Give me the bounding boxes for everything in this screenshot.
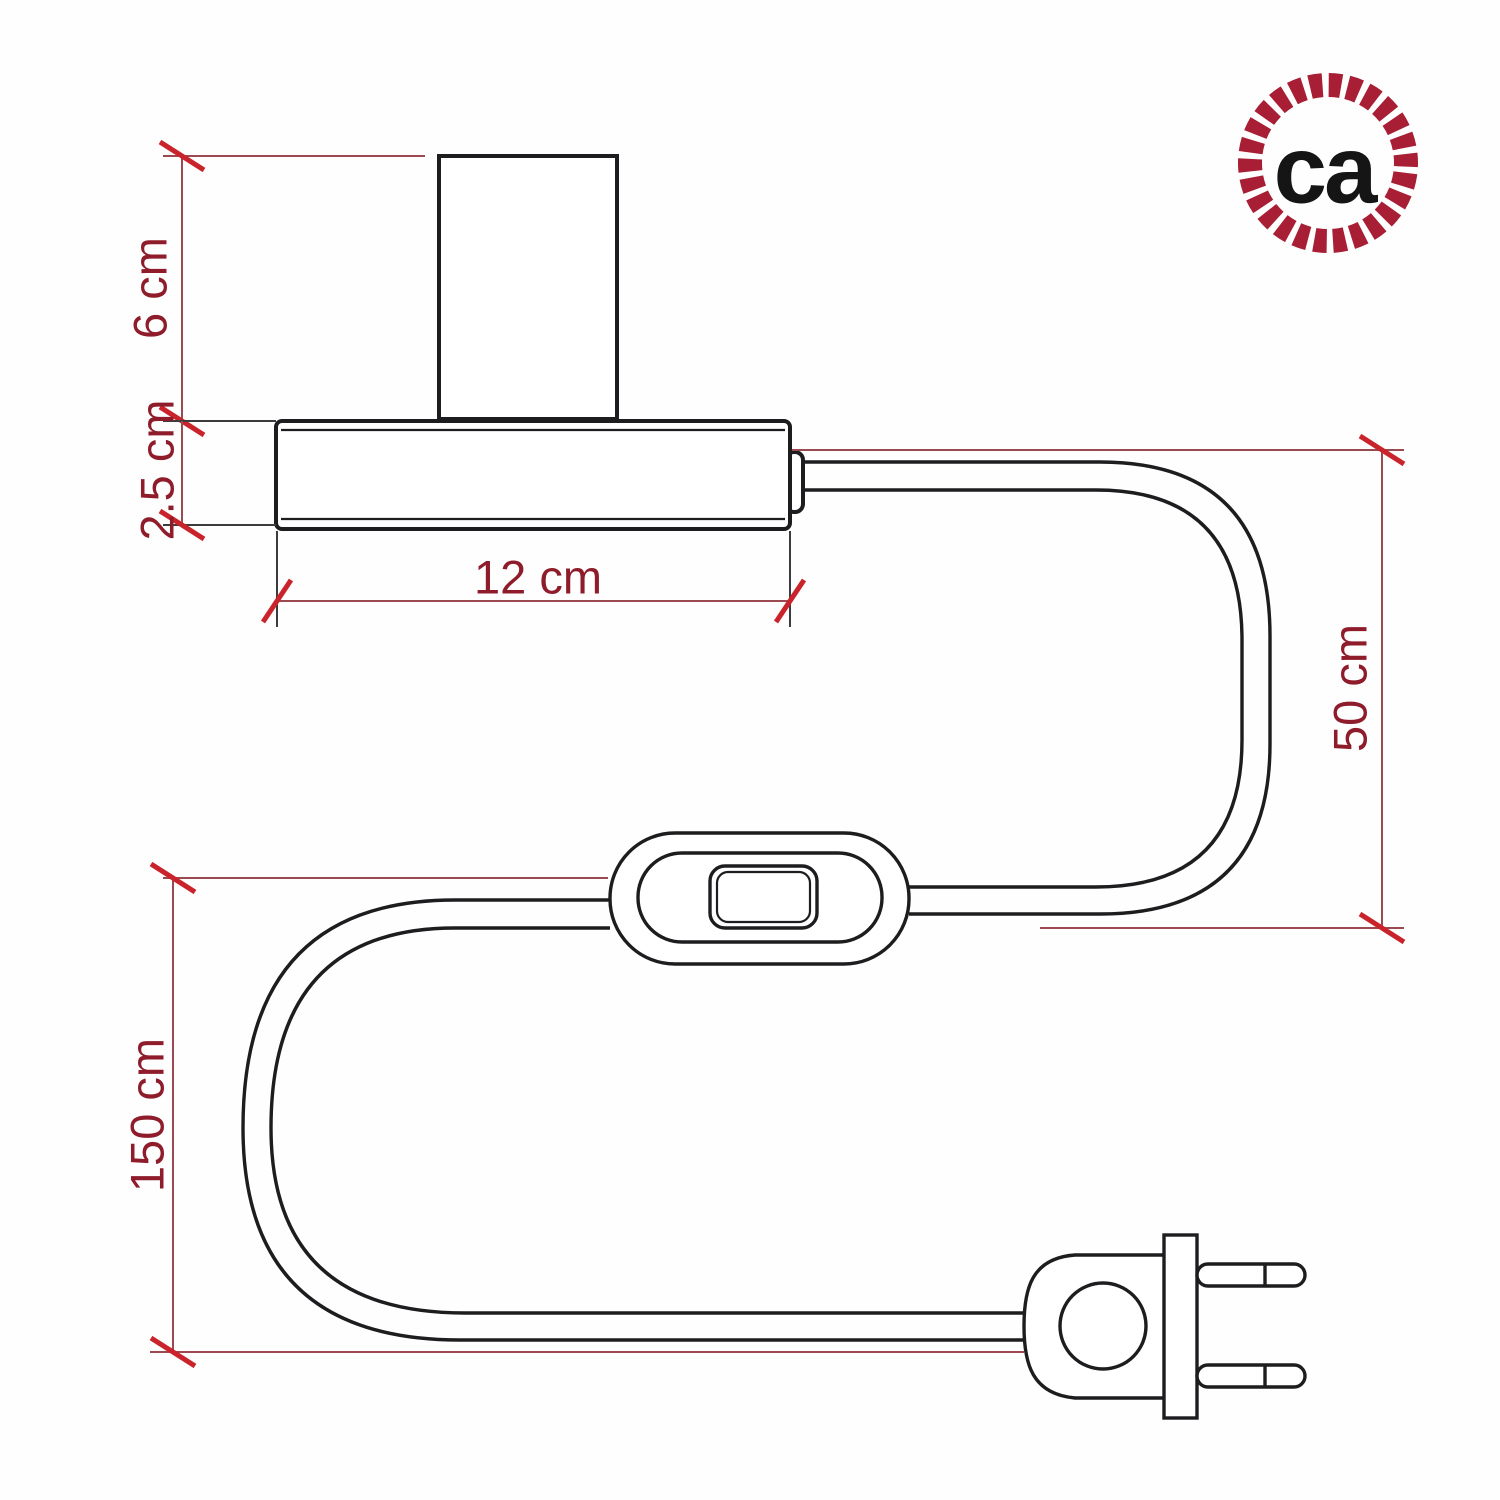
dimension-label: 150 cm bbox=[121, 1038, 174, 1192]
dimension-socket-height: 6 cm bbox=[124, 142, 426, 435]
dimension-label: 50 cm bbox=[1324, 624, 1377, 752]
lamp-base bbox=[276, 421, 790, 529]
dimension-base-thickness: 2.5 cm bbox=[131, 399, 277, 540]
dimension-diagram-page: 6 cm 2.5 cm 12 cm 50 cm 150 cm bbox=[0, 0, 1500, 1500]
plug-prong-upper bbox=[1197, 1264, 1305, 1286]
cable-lower-outer-line bbox=[243, 900, 1030, 1340]
dimension-label: 2.5 cm bbox=[131, 399, 184, 540]
cable-lower-run bbox=[243, 900, 1030, 1340]
cable-upper-inner-line bbox=[798, 490, 1242, 887]
plug-thumb-hole bbox=[1060, 1283, 1146, 1369]
power-plug bbox=[1024, 1235, 1305, 1418]
dimension-base-width: 12 cm bbox=[263, 531, 804, 627]
brand-logo: ca bbox=[1240, 75, 1416, 251]
dimension-label: 6 cm bbox=[124, 237, 177, 339]
cable-lower-inner-line bbox=[271, 928, 1030, 1313]
plug-prong-lower bbox=[1197, 1365, 1305, 1387]
dimension-label: 12 cm bbox=[474, 551, 602, 604]
socket-tube bbox=[439, 156, 617, 419]
table-lamp-technical-drawing: 6 cm 2.5 cm 12 cm 50 cm 150 cm bbox=[0, 0, 1500, 1500]
lamp-body bbox=[276, 156, 803, 529]
plug-face-plate bbox=[1164, 1235, 1197, 1418]
logo-text: ca bbox=[1274, 117, 1378, 224]
inline-switch bbox=[610, 833, 909, 964]
switch-rocker-button-inner bbox=[717, 872, 810, 922]
